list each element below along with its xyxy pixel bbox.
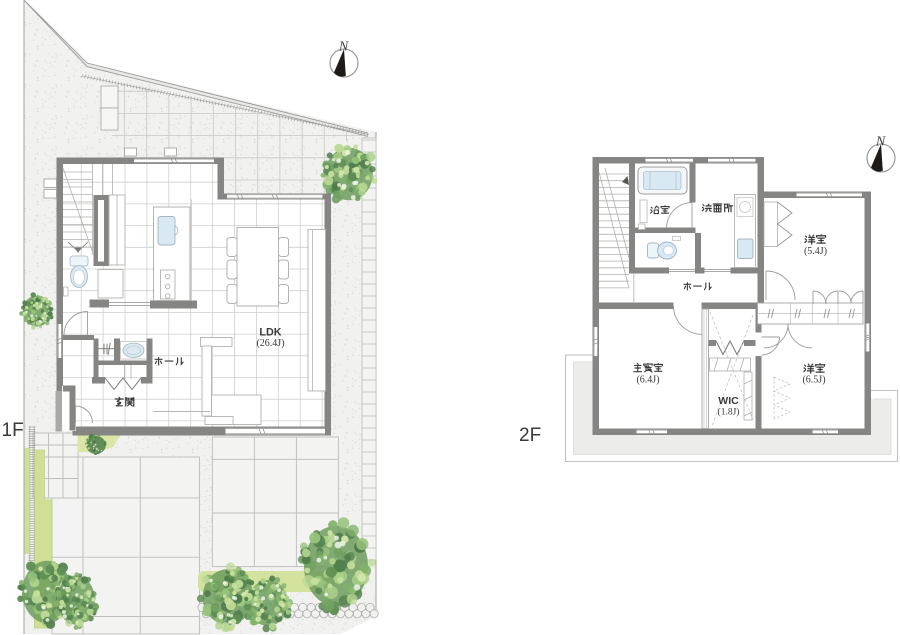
svg-text:(5.4J): (5.4J) xyxy=(804,246,827,257)
svg-text:N: N xyxy=(875,135,886,150)
svg-text:1F: 1F xyxy=(2,420,24,441)
svg-text:WIC: WIC xyxy=(718,395,739,407)
svg-text:N: N xyxy=(338,40,349,55)
svg-text:2F: 2F xyxy=(519,425,541,446)
svg-text:LDK: LDK xyxy=(259,327,281,339)
svg-text:(1.8J): (1.8J) xyxy=(718,407,740,418)
svg-text:(6.4J): (6.4J) xyxy=(636,375,659,386)
svg-text:(26.4J): (26.4J) xyxy=(256,338,284,349)
svg-text:(6.5J): (6.5J) xyxy=(802,375,825,386)
